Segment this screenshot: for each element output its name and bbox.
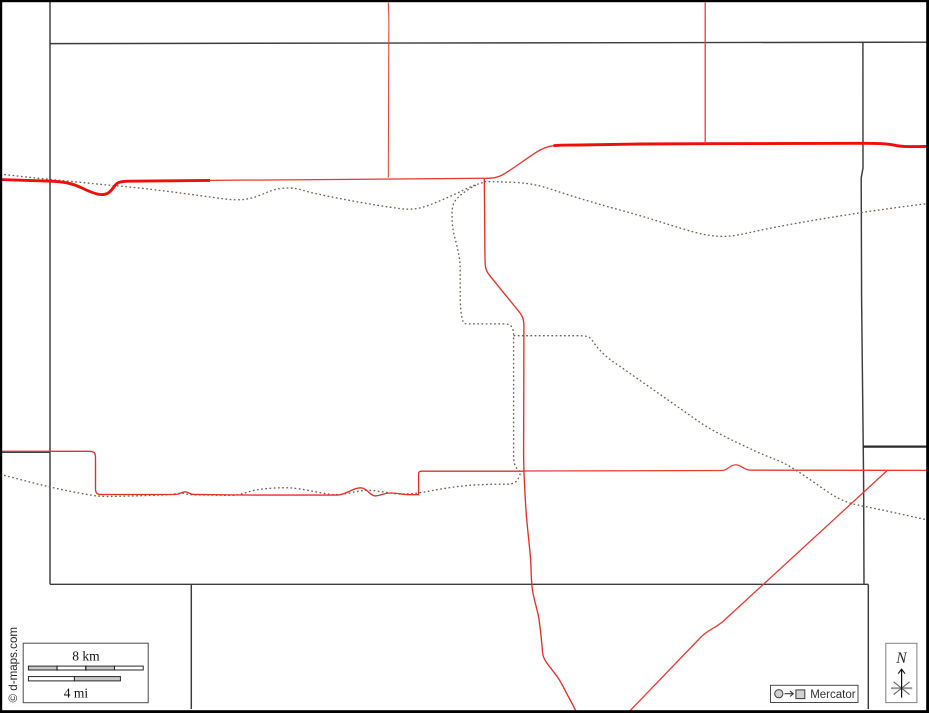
svg-text:4 mi: 4 mi <box>64 686 89 701</box>
svg-text:© d-maps.com: © d-maps.com <box>7 627 20 703</box>
svg-text:8 km: 8 km <box>72 649 100 664</box>
svg-text:Mercator: Mercator <box>810 689 856 701</box>
svg-text:N: N <box>895 650 908 667</box>
